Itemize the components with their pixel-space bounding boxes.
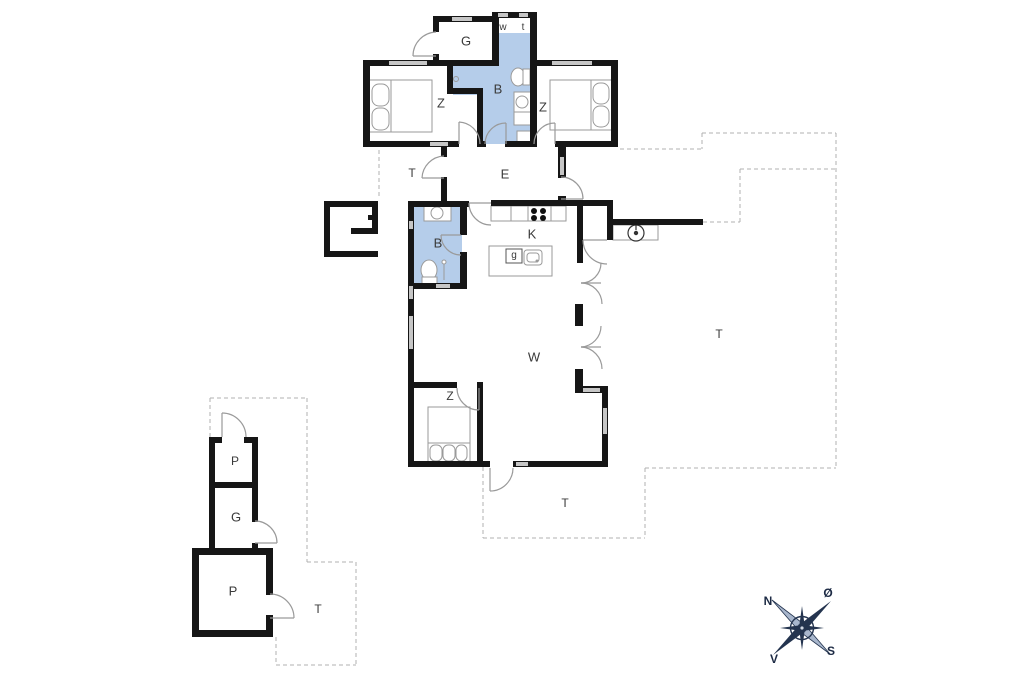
french-door-lower	[581, 326, 602, 369]
water-heater-icon	[628, 225, 644, 241]
room-label-terrace-east: T	[715, 328, 722, 340]
sink-main	[424, 206, 451, 221]
compass-label-west: V	[770, 653, 778, 665]
room-label-terrace-west: T	[408, 167, 415, 179]
toilet-main	[421, 260, 437, 284]
room-label-bathroom-top: B	[494, 83, 503, 96]
compass-label-north: N	[764, 595, 773, 607]
room-label-outbuilding-p2: P	[229, 585, 238, 598]
kitchen-counter	[491, 206, 566, 221]
bed-right	[550, 80, 612, 130]
bed-south	[428, 407, 470, 463]
floor-plan-canvas: G w t Z B Z T E B K g W T Z T P G P T N …	[0, 0, 1024, 682]
door-outbuilding-top	[222, 413, 246, 437]
french-door-upper	[581, 263, 602, 304]
room-label-bathroom-main: B	[434, 237, 443, 250]
room-label-terrace-south: T	[561, 497, 568, 509]
room-label-bedroom-south: Z	[446, 390, 453, 402]
room-label-bedroom-right: Z	[539, 101, 547, 114]
room-label-bedroom-left: Z	[437, 97, 445, 110]
room-label-entry-hall: E	[501, 168, 510, 181]
door-outbuilding-big	[270, 594, 294, 618]
compass-label-east: Ø	[823, 587, 832, 599]
door-annex	[413, 32, 436, 56]
room-label-annex: G	[461, 35, 471, 48]
door-closet	[583, 240, 607, 264]
kitchen-island	[489, 246, 552, 276]
floor-plan-drawing	[0, 0, 1024, 682]
room-label-living-room: W	[528, 351, 540, 364]
compass-rose-icon	[772, 600, 831, 655]
door-hall-kitchen	[469, 203, 491, 225]
room-label-kitchen: K	[528, 228, 537, 241]
compass-label-south: S	[827, 645, 835, 657]
room-label-outbuilding-g: G	[231, 511, 241, 524]
room-label-terrace-outbuilding: T	[314, 603, 321, 615]
door-outbuilding-garage	[255, 521, 277, 543]
room-label-w-closet: w	[499, 23, 506, 33]
door-entry-west	[422, 156, 444, 178]
toilet-top	[511, 68, 530, 86]
room-label-outbuilding-p1: P	[231, 455, 239, 467]
door-entry-east	[561, 177, 583, 199]
door-south-exit	[490, 468, 513, 491]
bed-left	[369, 80, 432, 132]
label-island-g: g	[511, 251, 517, 261]
room-label-t-toilet: t	[522, 23, 525, 33]
door-bedroom-left	[459, 122, 480, 144]
